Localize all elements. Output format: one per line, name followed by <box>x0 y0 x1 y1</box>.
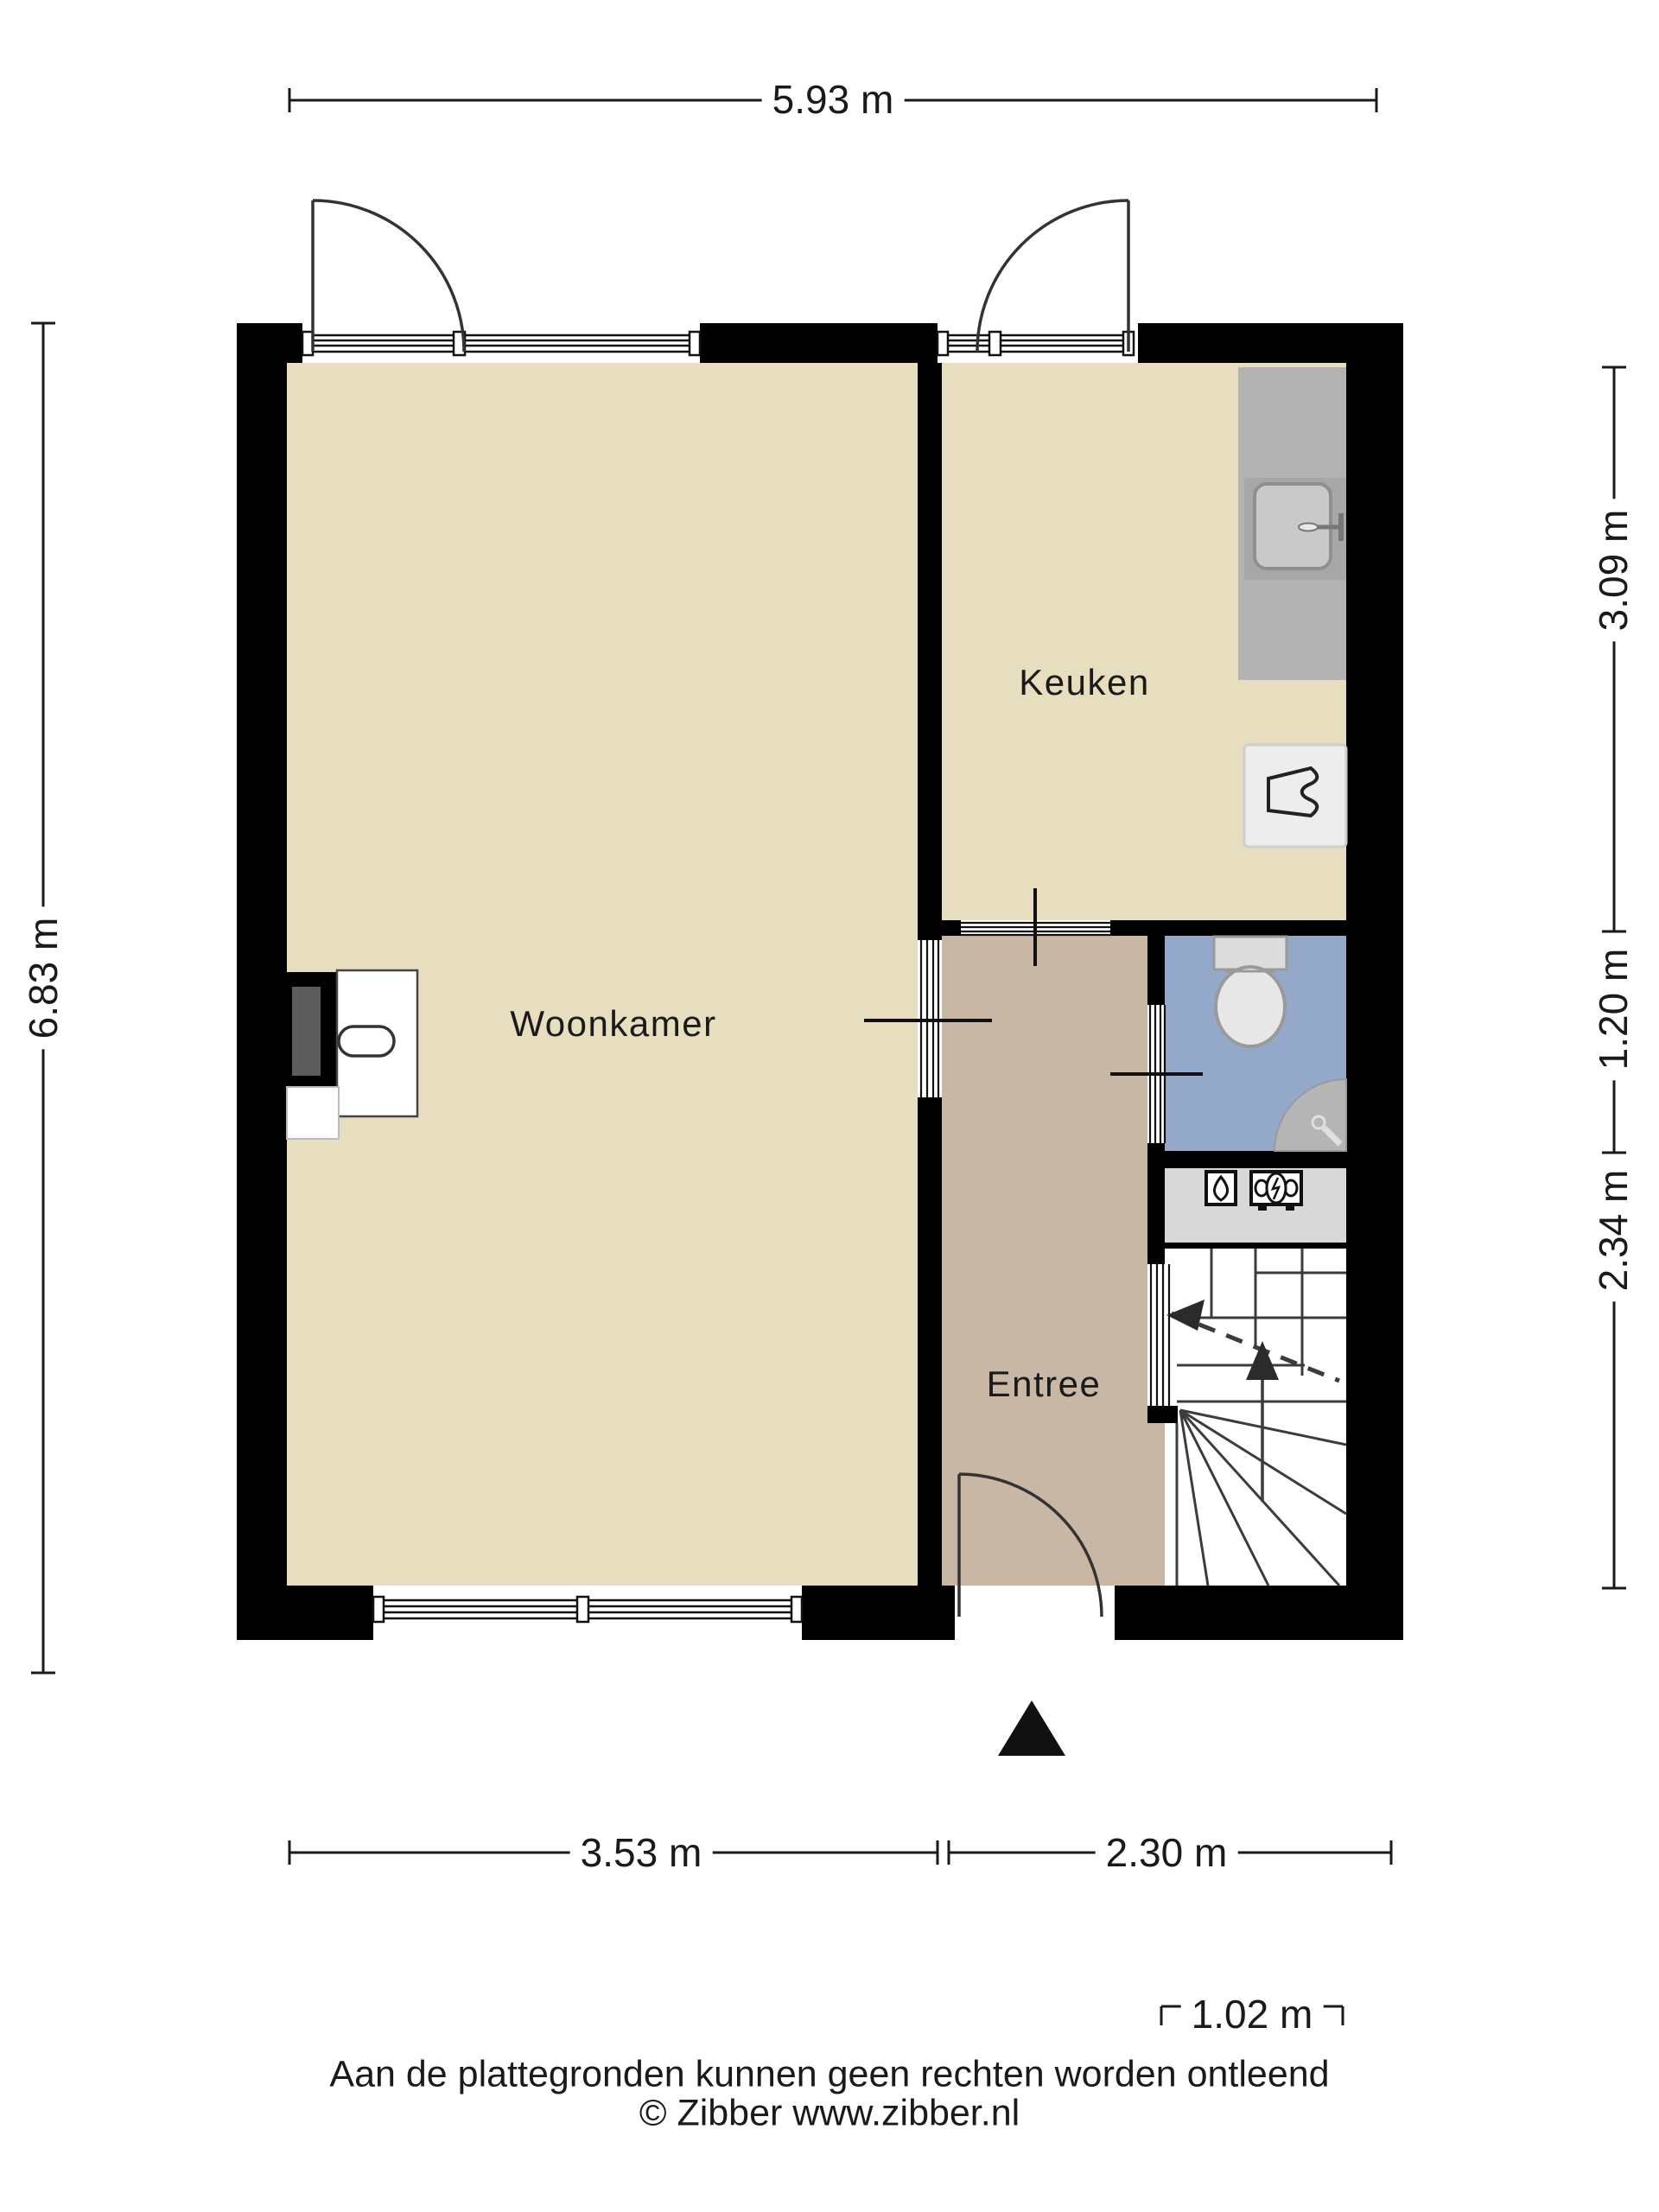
chimney-flue <box>292 987 321 1076</box>
wall-left <box>237 323 287 1640</box>
front-door-opening <box>955 1586 1115 1640</box>
wall-bottom-right <box>1115 1586 1403 1640</box>
wall-toilet-bottom <box>1147 1151 1346 1168</box>
wall-bottom-left <box>237 1586 373 1640</box>
window-cap <box>791 1597 802 1622</box>
dimension-bottom-left-label: 3.53 m <box>570 1831 713 1874</box>
kitchen-fixtures <box>1238 367 1346 847</box>
wall-bottom-middle <box>802 1586 955 1640</box>
fireplace-icon <box>339 1027 394 1056</box>
hearth-block <box>287 1087 339 1139</box>
wall-meter-left <box>1147 1168 1165 1264</box>
dimension-bottom-right-label: 2.30 m <box>1096 1831 1238 1874</box>
dimension-right-middle-label: 1.20 m <box>1592 938 1635 1081</box>
window-opening-a <box>302 323 700 363</box>
toilet-tank <box>1214 937 1287 969</box>
wall-stairs-stub <box>1147 1406 1178 1423</box>
dimension-right-bottom-label: 2.34 m <box>1592 1160 1635 1302</box>
room-label-entree: Entree <box>987 1366 1102 1402</box>
floor-plan-page: 5.93 m 6.83 m 3.09 m 1.20 m 2.34 m 3.53 … <box>0 0 1659 2212</box>
window-opening-b <box>938 323 1138 363</box>
window-cap <box>373 1597 384 1622</box>
dimension-top-label: 5.93 m <box>762 78 905 121</box>
toilet-icon <box>1216 967 1285 1046</box>
dimension-left-label: 6.83 m <box>22 907 65 1050</box>
meter-cupboard <box>1206 1172 1301 1211</box>
wall-top-middle <box>700 323 938 363</box>
wall-meter-bottom-line <box>1165 1243 1346 1249</box>
meter-foot <box>1286 1205 1294 1211</box>
room-label-keuken: Keuken <box>1019 664 1149 701</box>
floor-plan-svg <box>0 0 1659 2212</box>
window-divider <box>577 1597 588 1622</box>
window-cap <box>690 332 700 355</box>
dimension-right-top-label: 3.09 m <box>1592 499 1635 642</box>
window-cap <box>938 332 948 355</box>
footer-disclaimer: Aan de plattegronden kunnen geen rechten… <box>329 2056 1329 2094</box>
window-cap <box>302 332 313 355</box>
dimension-stair-width-label: 1.02 m <box>1181 1993 1324 2036</box>
wall-woonkamer-upper <box>918 363 942 940</box>
wall-woonkamer-lower <box>918 1097 942 1586</box>
window-divider <box>989 332 1001 355</box>
entree-floor <box>942 936 1147 1586</box>
room-label-woonkamer: Woonkamer <box>510 1006 716 1042</box>
footer-copyright: © Zibber www.zibber.nl <box>639 2095 1020 2133</box>
fireplace <box>287 970 417 1139</box>
entrance-triangle-icon <box>998 1700 1065 1756</box>
bottom-openings <box>373 1586 1115 1640</box>
stove-appliance <box>1244 745 1346 847</box>
meter-foot <box>1258 1205 1267 1211</box>
wall-keuken-right <box>1110 920 1346 936</box>
wall-right <box>1346 323 1403 1640</box>
wall-toilet-left-upper <box>1147 936 1165 1005</box>
wall-keuken-left <box>918 920 961 936</box>
